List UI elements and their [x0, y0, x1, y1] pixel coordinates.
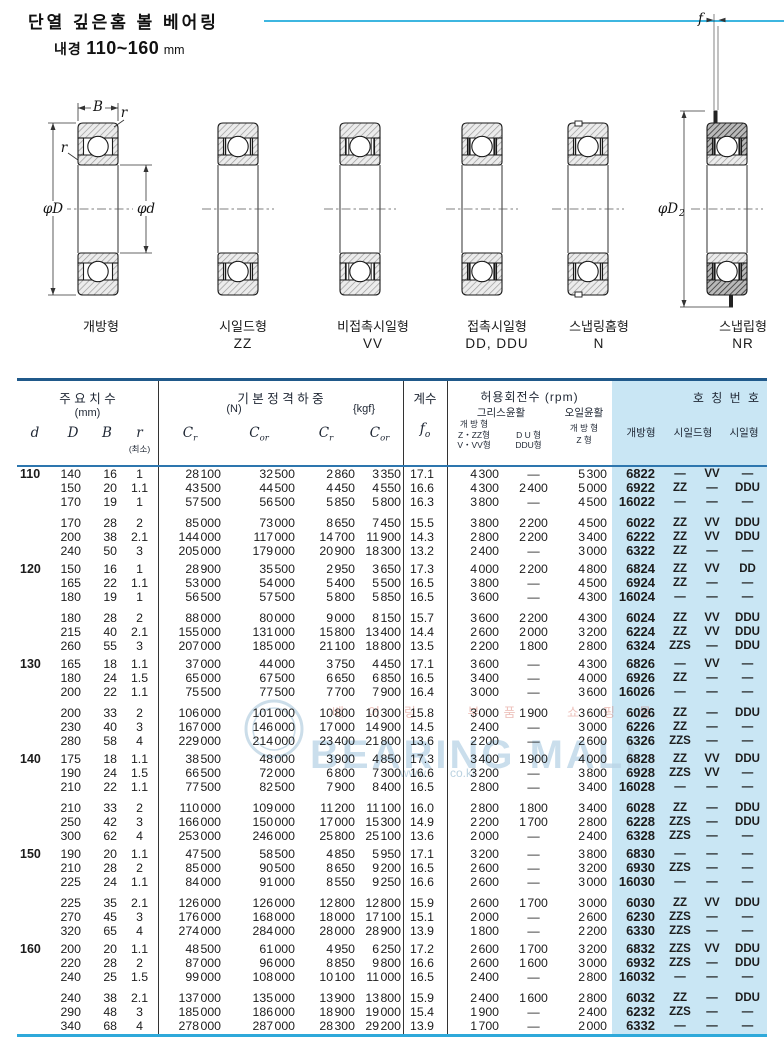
header-col-fo: fo: [403, 421, 447, 440]
cell-cor-kgf: 10 300: [356, 706, 403, 720]
cell-suffix-zz: ZZ: [664, 562, 696, 576]
table-row: 215402.1155 000131 00015 80013 40014.42 …: [17, 625, 767, 639]
cell-grease-du: —: [501, 1019, 556, 1033]
cell-grease-du: —: [501, 829, 556, 843]
cell-D: 165: [53, 576, 93, 590]
cell-cr-n: 84 000: [158, 875, 222, 889]
cell-cor-kgf: 6 250: [356, 942, 403, 956]
bore-group-160: 160200201.148 50061 0004 9506 25017.22 6…: [17, 942, 767, 1033]
cell-bearing-number: 6922: [612, 481, 664, 495]
cell-suffix-zz: —: [664, 685, 696, 699]
cell-suffix-vv: —: [696, 720, 728, 734]
cell-suffix-vv: —: [696, 639, 728, 653]
cell-fo: 13.2: [403, 544, 447, 558]
cell-B: 24: [93, 671, 121, 685]
table-row: 200382.1144 000117 00014 70011 90014.32 …: [17, 530, 767, 544]
cell-grease-open: 2 600: [447, 861, 501, 875]
cell-suffix-zz: ZZ: [664, 530, 696, 544]
cell-suffix-vv: —: [696, 481, 728, 495]
dim-label-phiD2-sub: 2: [678, 209, 685, 219]
cell-r: 1.1: [121, 481, 158, 495]
cell-cr-n: 48 500: [158, 942, 222, 956]
cell-suffix-zz: ZZ: [664, 752, 696, 766]
cell-bearing-number: 16030: [612, 875, 664, 889]
cell-D: 240: [53, 970, 93, 984]
cell-grease-open: 4 300: [447, 467, 501, 481]
dim-label-phiD: φD: [43, 201, 63, 217]
cell-suffix-vv: VV: [696, 896, 728, 910]
cell-grease-du: 1 800: [501, 801, 556, 815]
cell-grease-du: —: [501, 544, 556, 558]
table-row: 200332106 000101 00010 80010 30015.83 00…: [17, 706, 767, 720]
cell-B: 35: [93, 896, 121, 910]
cell-oil-open: 4 500: [556, 576, 612, 590]
cell-B: 22: [93, 780, 121, 794]
cell-grease-du: 1 900: [501, 706, 556, 720]
cell-cor-n: 73 000: [222, 516, 296, 530]
cell-suffix-zz: —: [664, 970, 696, 984]
cell-grease-open: 2 600: [447, 956, 501, 970]
cell-oil-open: 4 500: [556, 516, 612, 530]
cell-suffix-vv: —: [696, 815, 728, 829]
header-col-r: r: [121, 425, 158, 441]
table-row: 240503205 000179 00020 90018 30013.22 40…: [17, 544, 767, 558]
cell-bearing-number: 6222: [612, 530, 664, 544]
cell-d: [17, 685, 53, 699]
table-row: 230403167 000146 00017 00014 90014.52 40…: [17, 720, 767, 734]
cell-D: 280: [53, 734, 93, 748]
cell-suffix-ddu: —: [728, 734, 767, 748]
cell-cr-kgf: 12 800: [296, 896, 356, 910]
cell-suffix-vv: —: [696, 780, 728, 794]
cell-cr-kgf: 6 800: [296, 766, 356, 780]
cell-r: 1.1: [121, 847, 158, 861]
cell-B: 22: [93, 685, 121, 699]
cell-cor-kgf: 5 500: [356, 576, 403, 590]
cell-fo: 15.1: [403, 910, 447, 924]
cell-grease-du: —: [501, 847, 556, 861]
cell-suffix-vv: —: [696, 991, 728, 1005]
cell-cr-kgf: 5 850: [296, 495, 356, 509]
cell-cor-kgf: 7 900: [356, 685, 403, 699]
cell-suffix-vv: —: [696, 924, 728, 938]
cell-suffix-zz: ZZ: [664, 516, 696, 530]
cell-suffix-vv: —: [696, 970, 728, 984]
cell-d: [17, 910, 53, 924]
cell-suffix-vv: —: [696, 829, 728, 843]
cell-cor-n: 135 000: [222, 991, 296, 1005]
table-header: 주 요 치 수 (mm) d D B r (최소) 기 본 정 격 하 중 (N…: [17, 381, 767, 465]
cell-suffix-ddu: —: [728, 1005, 767, 1019]
table-row: 18028288 00080 0009 0008 15015.73 6002 2…: [17, 611, 767, 625]
cell-cor-n: 54 000: [222, 576, 296, 590]
cell-bearing-number: 6332: [612, 1019, 664, 1033]
cell-fo: 15.8: [403, 706, 447, 720]
cell-oil-open: 2 800: [556, 639, 612, 653]
bore-group-120: 12015016128 90035 5002 9503 65017.34 000…: [17, 562, 767, 653]
cell-cor-kgf: 14 900: [356, 720, 403, 734]
cell-cr-kgf: 28 000: [296, 924, 356, 938]
cell-B: 18: [93, 657, 121, 671]
cell-cor-n: 61 000: [222, 942, 296, 956]
cell-bearing-number: 6232: [612, 1005, 664, 1019]
cell-D: 210: [53, 780, 93, 794]
header-unit-n: (N): [226, 403, 241, 415]
cell-d: 120: [17, 562, 53, 576]
cell-D: 250: [53, 815, 93, 829]
cell-grease-open: 2 200: [447, 639, 501, 653]
cell-d: 140: [17, 752, 53, 766]
cell-grease-open: 3 600: [447, 657, 501, 671]
cell-suffix-ddu: DDU: [728, 481, 767, 495]
cell-d: [17, 829, 53, 843]
cell-B: 33: [93, 801, 121, 815]
cell-cr-n: 87 000: [158, 956, 222, 970]
cell-d: [17, 801, 53, 815]
cell-fo: 16.3: [403, 495, 447, 509]
cell-cr-kgf: 18 900: [296, 1005, 356, 1019]
cell-cr-n: 75 500: [158, 685, 222, 699]
cell-D: 140: [53, 467, 93, 481]
cell-B: 68: [93, 1019, 121, 1033]
cell-suffix-zz: —: [664, 467, 696, 481]
cell-cor-kgf: 15 300: [356, 815, 403, 829]
cell-suffix-zz: ZZS: [664, 956, 696, 970]
cell-bearing-number: 6832: [612, 942, 664, 956]
cell-suffix-ddu: DDU: [728, 516, 767, 530]
cell-oil-open: 3 600: [556, 706, 612, 720]
cell-cr-n: 253 000: [158, 829, 222, 843]
cell-bearing-number: 6926: [612, 671, 664, 685]
cell-D: 190: [53, 847, 93, 861]
cell-cr-kgf: 15 800: [296, 625, 356, 639]
cell-fo: 16.5: [403, 576, 447, 590]
cell-oil-open: 2 400: [556, 829, 612, 843]
table-row: 225352.1126 000126 00012 80012 80015.92 …: [17, 896, 767, 910]
cell-cr-n: 137 000: [158, 991, 222, 1005]
cell-grease-open: 2 400: [447, 544, 501, 558]
cell-fo: 17.1: [403, 847, 447, 861]
cell-suffix-zz: —: [664, 590, 696, 604]
cell-d: [17, 611, 53, 625]
cell-r: 3: [121, 910, 158, 924]
cell-cor-n: 80 000: [222, 611, 296, 625]
cell-fo: 15.5: [403, 516, 447, 530]
cell-cr-kgf: 17 000: [296, 720, 356, 734]
cell-cr-kgf: 3 900: [296, 752, 356, 766]
cell-cor-n: 108 000: [222, 970, 296, 984]
cell-cr-kgf: 6 650: [296, 671, 356, 685]
cell-fo: 16.6: [403, 766, 447, 780]
cell-r: 2: [121, 801, 158, 815]
cell-suffix-zz: ZZS: [664, 942, 696, 956]
header-col-cr-kgf: Cr: [296, 425, 356, 444]
cell-B: 42: [93, 815, 121, 829]
cell-r: 4: [121, 1019, 158, 1033]
cell-grease-du: —: [501, 861, 556, 875]
cell-d: [17, 516, 53, 530]
cell-suffix-zz: ZZ: [664, 671, 696, 685]
cell-D: 230: [53, 720, 93, 734]
cell-suffix-ddu: —: [728, 590, 767, 604]
cell-bearing-number: 6030: [612, 896, 664, 910]
table-row: 320654274 000284 00028 00028 90013.91 80…: [17, 924, 767, 938]
cell-cor-n: 44 500: [222, 481, 296, 495]
cell-cor-n: 77 500: [222, 685, 296, 699]
cell-B: 16: [93, 562, 121, 576]
cell-oil-open: 5 300: [556, 467, 612, 481]
cell-grease-du: —: [501, 924, 556, 938]
header-col-D: D: [53, 425, 93, 441]
cell-B: 24: [93, 766, 121, 780]
cell-suffix-ddu: —: [728, 576, 767, 590]
diagram-caption-zz: 시일드형ZZ: [168, 318, 318, 352]
cell-cr-n: 278 000: [158, 1019, 222, 1033]
cell-suffix-ddu: —: [728, 467, 767, 481]
cell-cor-n: 150 000: [222, 815, 296, 829]
cell-r: 2.1: [121, 530, 158, 544]
cell-B: 18: [93, 752, 121, 766]
cell-cor-n: 186 000: [222, 1005, 296, 1019]
bore-range-label: 내경: [54, 41, 82, 57]
cell-cr-kgf: 17 000: [296, 815, 356, 829]
cell-suffix-ddu: —: [728, 766, 767, 780]
cell-suffix-zz: ZZS: [664, 734, 696, 748]
cell-suffix-ddu: DDU: [728, 815, 767, 829]
cell-suffix-ddu: DDU: [728, 625, 767, 639]
cell-d: [17, 706, 53, 720]
cell-fo: 13.9: [403, 1019, 447, 1033]
cell-cr-kgf: 21 100: [296, 639, 356, 653]
cell-r: 1: [121, 590, 158, 604]
table-row: 240251.599 000108 00010 10011 00016.52 4…: [17, 970, 767, 984]
cell-cr-kgf: 9 000: [296, 611, 356, 625]
cell-cor-kgf: 13 800: [356, 991, 403, 1005]
cell-B: 62: [93, 829, 121, 843]
cell-cr-n: 106 000: [158, 706, 222, 720]
cell-d: [17, 590, 53, 604]
table-row: 12015016128 90035 5002 9503 65017.34 000…: [17, 562, 767, 576]
cell-fo: 17.3: [403, 752, 447, 766]
cell-suffix-zz: ZZ: [664, 544, 696, 558]
cell-suffix-vv: VV: [696, 766, 728, 780]
cell-fo: 13.9: [403, 924, 447, 938]
cell-suffix-ddu: —: [728, 685, 767, 699]
cell-grease-open: 1 700: [447, 1019, 501, 1033]
cell-suffix-zz: ZZ: [664, 706, 696, 720]
cell-D: 170: [53, 495, 93, 509]
cell-oil-open: 3 400: [556, 801, 612, 815]
header-unit-kgf: {kgf}: [353, 403, 375, 415]
cell-D: 200: [53, 706, 93, 720]
cell-B: 22: [93, 576, 121, 590]
cell-suffix-vv: —: [696, 956, 728, 970]
cell-grease-du: —: [501, 970, 556, 984]
header-col-cor-n: Cor: [222, 425, 296, 444]
cell-grease-open: 4 000: [447, 562, 501, 576]
cell-suffix-vv: —: [696, 544, 728, 558]
header-dimensions-unit: (mm): [17, 407, 158, 419]
cell-cr-n: 37 000: [158, 657, 222, 671]
table-row: 22028287 00096 0008 8509 80016.62 6001 6…: [17, 956, 767, 970]
cell-cor-kgf: 8 150: [356, 611, 403, 625]
cell-d: [17, 1019, 53, 1033]
cell-cr-kgf: 4 850: [296, 847, 356, 861]
cell-d: [17, 495, 53, 509]
cell-bearing-number: 6228: [612, 815, 664, 829]
cell-cr-n: 47 500: [158, 847, 222, 861]
cell-cor-n: 57 500: [222, 590, 296, 604]
cell-d: 130: [17, 657, 53, 671]
cell-grease-du: —: [501, 685, 556, 699]
table-row: 300624253 000246 00025 80025 10013.62 00…: [17, 829, 767, 843]
cell-grease-du: —: [501, 910, 556, 924]
dimension-arrows-open: [51, 106, 149, 296]
header-grease-col2: D U 형 DDU형: [501, 419, 556, 451]
cell-suffix-zz: —: [664, 657, 696, 671]
cell-D: 180: [53, 671, 93, 685]
cell-bearing-number: 6028: [612, 801, 664, 815]
cell-cor-n: 131 000: [222, 625, 296, 639]
cell-oil-open: 3 200: [556, 625, 612, 639]
bore-range-unit: mm: [164, 43, 185, 57]
cell-cor-n: 58 500: [222, 847, 296, 861]
cell-r: 1: [121, 467, 158, 481]
cell-cr-kgf: 8 850: [296, 956, 356, 970]
cell-D: 320: [53, 924, 93, 938]
header-factor: 계수 fo: [403, 381, 447, 465]
cell-grease-open: 3 600: [447, 611, 501, 625]
cell-suffix-ddu: DDU: [728, 706, 767, 720]
cell-bearing-number: 6326: [612, 734, 664, 748]
cell-d: [17, 576, 53, 590]
cell-r: 2.1: [121, 625, 158, 639]
cell-suffix-zz: ZZS: [664, 1005, 696, 1019]
table-row: 17028285 00073 0008 6507 45015.53 8002 2…: [17, 516, 767, 530]
table-row: 150190201.147 50058 5004 8505 95017.13 2…: [17, 847, 767, 861]
cell-grease-du: —: [501, 766, 556, 780]
cell-grease-open: 3 800: [447, 516, 501, 530]
cell-B: 40: [93, 720, 121, 734]
cell-grease-du: 1 700: [501, 815, 556, 829]
header-loads: 기 본 정 격 하 중 (N) {kgf} Cr Cor Cr Cor: [158, 381, 403, 465]
cell-B: 20: [93, 847, 121, 861]
cell-bearing-number: 6932: [612, 956, 664, 970]
cell-cr-n: 205 000: [158, 544, 222, 558]
cell-oil-open: 3 800: [556, 766, 612, 780]
cell-suffix-ddu: —: [728, 829, 767, 843]
header-numbers-open: 개방형: [627, 425, 656, 440]
cell-suffix-zz: —: [664, 495, 696, 509]
cell-cr-n: 144 000: [158, 530, 222, 544]
cell-oil-open: 5 000: [556, 481, 612, 495]
cell-cor-kgf: 5 850: [356, 590, 403, 604]
cell-cor-kgf: 13 400: [356, 625, 403, 639]
cell-d: [17, 875, 53, 889]
cell-cr-n: 28 100: [158, 467, 222, 481]
cell-D: 290: [53, 1005, 93, 1019]
cell-oil-open: 3 000: [556, 896, 612, 910]
cell-r: 1.1: [121, 576, 158, 590]
cell-cor-n: 32 500: [222, 467, 296, 481]
cell-D: 150: [53, 562, 93, 576]
cell-cr-n: 43 500: [158, 481, 222, 495]
cell-grease-open: 3 400: [447, 752, 501, 766]
cell-grease-open: 2 800: [447, 780, 501, 794]
cell-bearing-number: 6928: [612, 766, 664, 780]
cell-cor-n: 126 000: [222, 896, 296, 910]
cell-D: 240: [53, 991, 93, 1005]
bearing-shapes: [62, 111, 763, 308]
cell-r: 2: [121, 516, 158, 530]
cell-r: 3: [121, 720, 158, 734]
cell-d: 150: [17, 847, 53, 861]
cell-d: [17, 481, 53, 495]
cell-D: 200: [53, 942, 93, 956]
cell-oil-open: 2 800: [556, 991, 612, 1005]
cell-cr-kgf: 2 860: [296, 467, 356, 481]
cell-cr-kgf: 11 200: [296, 801, 356, 815]
cell-cr-kgf: 3 750: [296, 657, 356, 671]
cell-cr-kgf: 8 550: [296, 875, 356, 889]
cell-fo: 15.9: [403, 896, 447, 910]
header-dimensions-title: 주 요 치 수: [17, 381, 158, 407]
cell-cor-n: 117 000: [222, 530, 296, 544]
cell-bearing-number: 6826: [612, 657, 664, 671]
cell-cor-kgf: 5 950: [356, 847, 403, 861]
cell-B: 55: [93, 639, 121, 653]
cell-D: 225: [53, 896, 93, 910]
cell-suffix-zz: ZZS: [664, 829, 696, 843]
cell-suffix-ddu: —: [728, 970, 767, 984]
cell-fo: 14.4: [403, 625, 447, 639]
cell-d: [17, 861, 53, 875]
cell-D: 210: [53, 801, 93, 815]
cell-suffix-ddu: DDU: [728, 956, 767, 970]
cell-d: [17, 625, 53, 639]
cell-cr-kgf: 5 400: [296, 576, 356, 590]
cell-oil-open: 4 500: [556, 495, 612, 509]
cell-B: 19: [93, 590, 121, 604]
cell-suffix-zz: ZZ: [664, 625, 696, 639]
cell-oil-open: 3 800: [556, 847, 612, 861]
cell-grease-open: 2 200: [447, 815, 501, 829]
table-row: 130165181.137 00044 0003 7504 45017.13 6…: [17, 657, 767, 671]
cell-suffix-vv: VV: [696, 516, 728, 530]
cell-fo: 16.4: [403, 685, 447, 699]
cell-grease-du: 2 400: [501, 481, 556, 495]
cell-cr-n: 126 000: [158, 896, 222, 910]
cell-bearing-number: 6324: [612, 639, 664, 653]
cell-grease-du: 1 800: [501, 639, 556, 653]
cell-B: 20: [93, 942, 121, 956]
cell-cr-kgf: 2 950: [296, 562, 356, 576]
cell-B: 28: [93, 516, 121, 530]
cell-suffix-ddu: DDU: [728, 639, 767, 653]
cell-cr-n: 53 000: [158, 576, 222, 590]
cell-r: 3: [121, 1005, 158, 1019]
cell-suffix-vv: —: [696, 590, 728, 604]
cell-suffix-zz: —: [664, 1019, 696, 1033]
cell-cor-kgf: 18 300: [356, 544, 403, 558]
cell-cor-kgf: 11 100: [356, 801, 403, 815]
cell-grease-open: 2 400: [447, 720, 501, 734]
cell-B: 33: [93, 706, 121, 720]
cell-suffix-ddu: —: [728, 924, 767, 938]
cell-bearing-number: 16022: [612, 495, 664, 509]
cell-bearing-number: 6024: [612, 611, 664, 625]
cell-cor-n: 146 000: [222, 720, 296, 734]
